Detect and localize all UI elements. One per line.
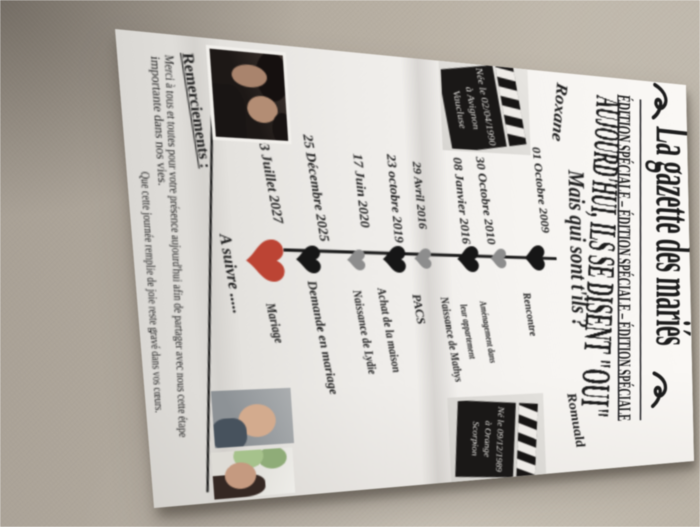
svg-text:à Orange: à Orange [482,421,493,458]
svg-text:Scorpion: Scorpion [469,421,480,456]
